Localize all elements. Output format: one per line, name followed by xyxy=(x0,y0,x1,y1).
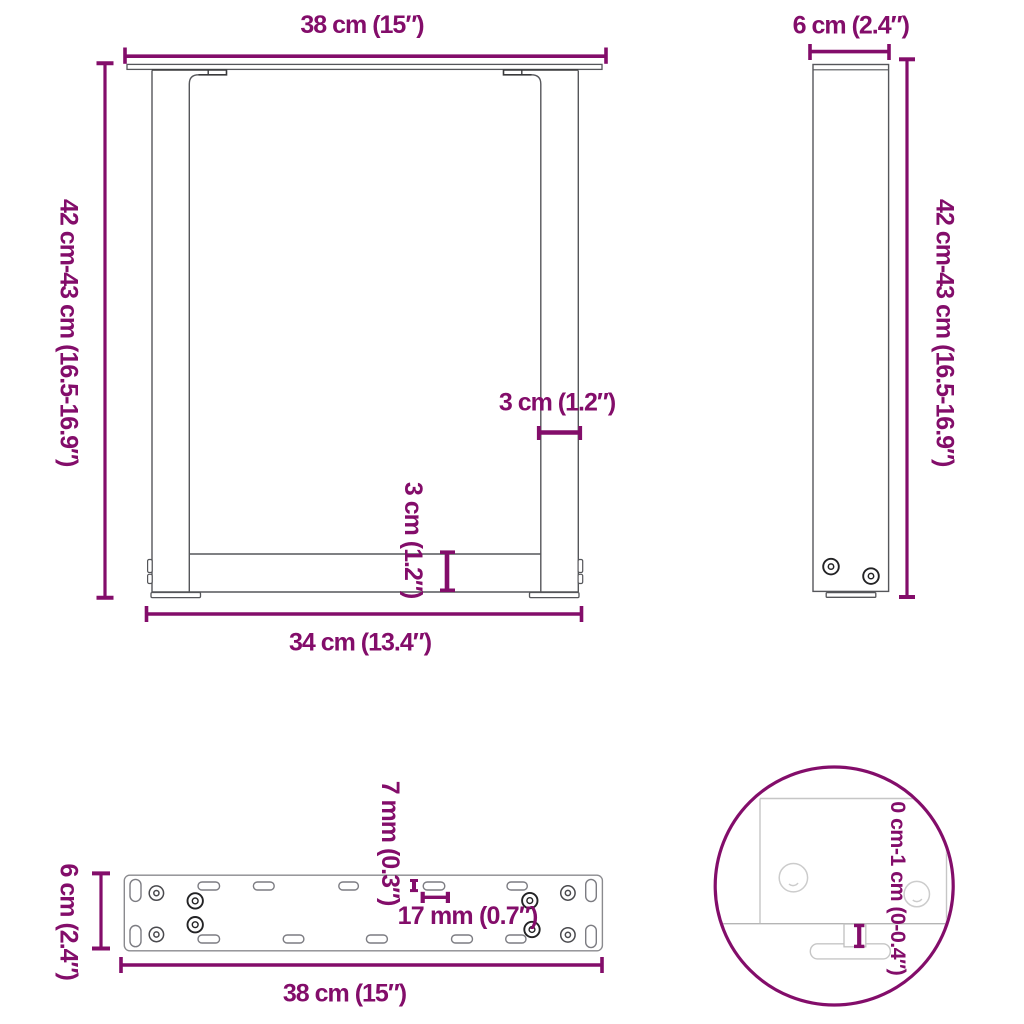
svg-text:3 cm (1.2″): 3 cm (1.2″) xyxy=(499,389,616,417)
svg-text:42 cm-43 cm (16.5-16.9″): 42 cm-43 cm (16.5-16.9″) xyxy=(931,199,959,467)
svg-text:17 mm (0.7″): 17 mm (0.7″) xyxy=(398,902,538,930)
svg-text:7 mm (0.3″): 7 mm (0.3″) xyxy=(376,781,404,906)
svg-text:3 cm (1.2″): 3 cm (1.2″) xyxy=(399,482,427,599)
svg-text:0 cm-1 cm (0-0.4″): 0 cm-1 cm (0-0.4″) xyxy=(886,801,910,975)
svg-text:38 cm (15″): 38 cm (15″) xyxy=(283,980,407,1008)
svg-text:6 cm (2.4″): 6 cm (2.4″) xyxy=(793,12,910,40)
svg-text:42 cm-43 cm (16.5-16.9″): 42 cm-43 cm (16.5-16.9″) xyxy=(55,199,83,467)
svg-text:34 cm (13.4″): 34 cm (13.4″) xyxy=(289,629,432,657)
svg-text:6 cm (2.4″): 6 cm (2.4″) xyxy=(55,864,83,981)
svg-text:38 cm (15″): 38 cm (15″) xyxy=(300,11,424,39)
